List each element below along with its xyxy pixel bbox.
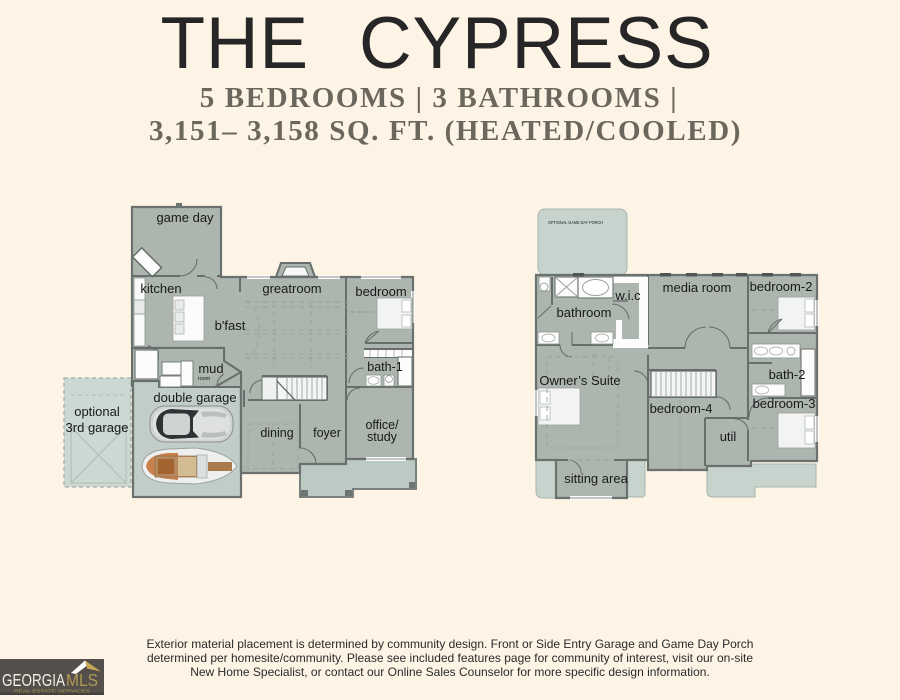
svg-text:media room: media room <box>663 280 732 295</box>
svg-text:foyer: foyer <box>313 426 341 440</box>
svg-text:sitting area: sitting area <box>564 471 628 486</box>
svg-text:bathroom: bathroom <box>557 305 612 320</box>
svg-text:room: room <box>198 376 211 382</box>
svg-text:w.i.c: w.i.c <box>614 288 641 303</box>
svg-text:Owner’s Suite: Owner’s Suite <box>539 373 620 388</box>
svg-text:OPTIONAL GAME DAY PORCH: OPTIONAL GAME DAY PORCH <box>548 220 603 225</box>
svg-text:bath-1: bath-1 <box>367 360 402 374</box>
svg-text:bedroom-3: bedroom-3 <box>753 396 816 411</box>
svg-text:mud: mud <box>198 361 223 376</box>
svg-text:bedroom: bedroom <box>355 284 406 299</box>
svg-text:optional: optional <box>74 404 120 419</box>
svg-text:bedroom-4: bedroom-4 <box>650 401 713 416</box>
svg-text:b'fast: b'fast <box>215 318 246 333</box>
svg-text:greatroom: greatroom <box>262 281 321 296</box>
svg-text:bath-2: bath-2 <box>769 367 806 382</box>
svg-text:util: util <box>720 429 737 444</box>
svg-text:dining: dining <box>260 426 293 440</box>
svg-text:double garage: double garage <box>153 390 236 405</box>
svg-text:3rd garage: 3rd garage <box>66 420 129 435</box>
svg-text:game day: game day <box>156 210 214 225</box>
svg-text:kitchen: kitchen <box>140 281 181 296</box>
svg-text:MLS: MLS <box>66 670 98 690</box>
svg-text:bedroom-2: bedroom-2 <box>750 279 813 294</box>
svg-text:study: study <box>367 430 398 444</box>
svg-text:GEORGIA: GEORGIA <box>2 670 65 690</box>
